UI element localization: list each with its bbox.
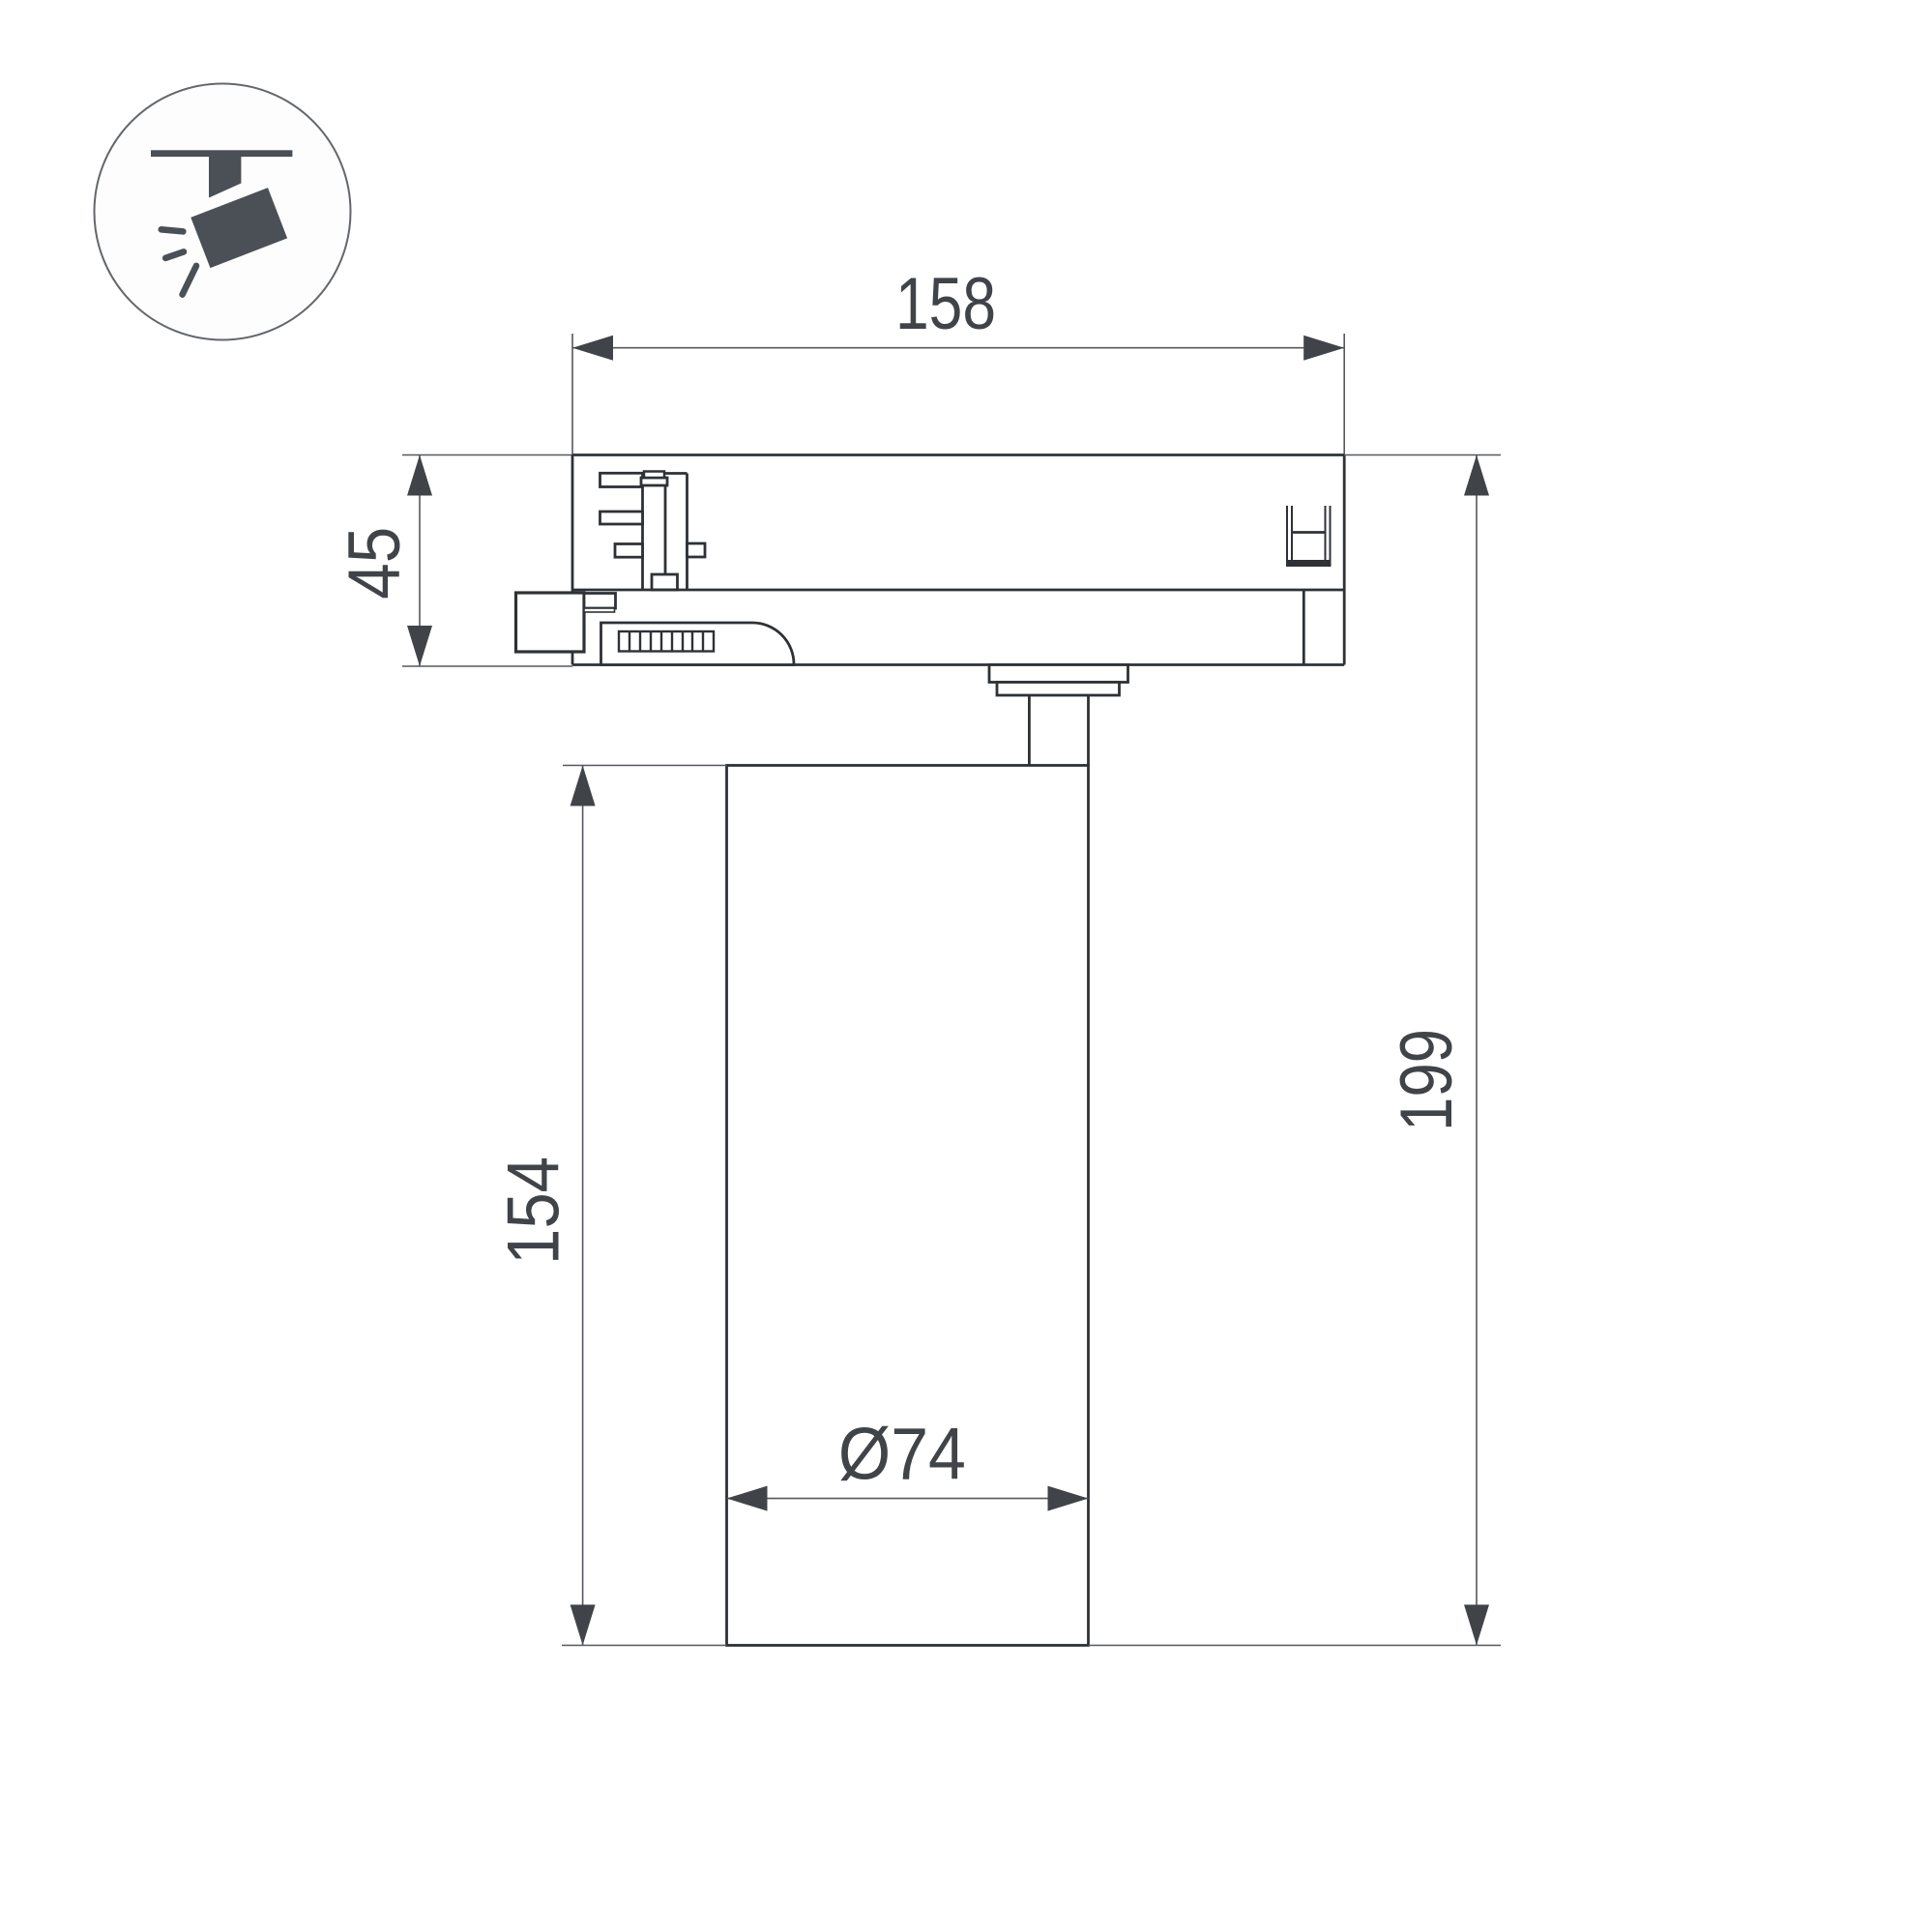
svg-text:158: 158: [895, 263, 996, 345]
svg-text:Ø74: Ø74: [838, 1414, 966, 1496]
svg-text:154: 154: [493, 1156, 575, 1265]
svg-text:199: 199: [1386, 1029, 1468, 1131]
svg-text:45: 45: [334, 527, 416, 600]
